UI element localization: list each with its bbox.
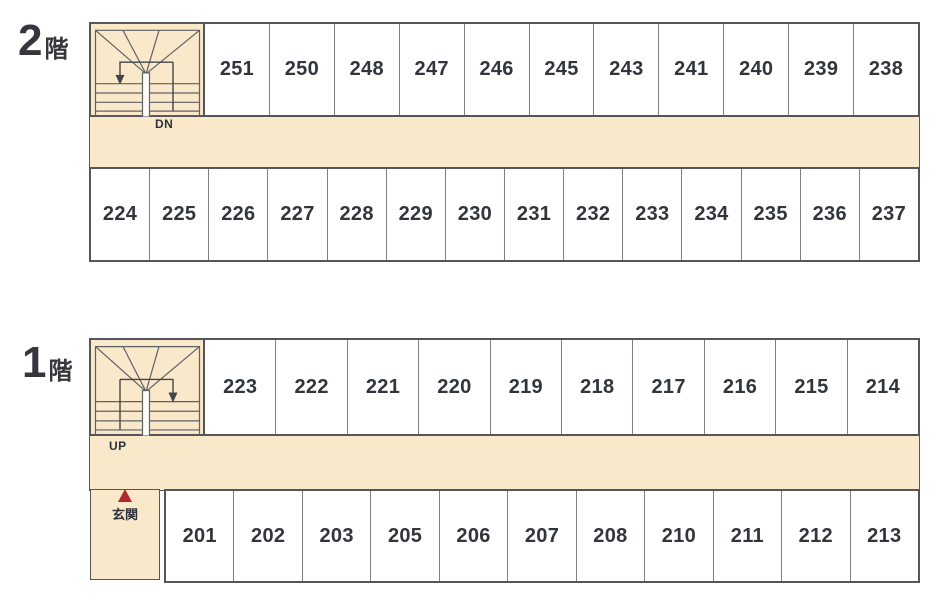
- room-cell: 240: [723, 24, 788, 115]
- entrance-label: 玄関: [112, 504, 138, 523]
- floor-1-number: 1: [22, 341, 45, 385]
- stair-direction-1f: UP: [109, 439, 127, 453]
- room-cell: 214: [847, 340, 918, 434]
- room-cell: 205: [370, 491, 438, 581]
- room-cell: 220: [418, 340, 489, 434]
- room-cell: 246: [464, 24, 529, 115]
- floor-1-label: 1 階: [22, 339, 72, 385]
- room-cell: 216: [704, 340, 775, 434]
- room-cell: 224: [91, 169, 149, 260]
- room-cell: 215: [775, 340, 846, 434]
- stair-direction-2f: DN: [155, 117, 173, 131]
- room-cell: 231: [504, 169, 563, 260]
- room-cell: 241: [658, 24, 723, 115]
- room-cell: 237: [859, 169, 918, 260]
- room-cell: 206: [439, 491, 507, 581]
- floor-1-section: 1 階 UP 223222221220219218217216215214: [0, 300, 940, 607]
- room-cell: 225: [149, 169, 208, 260]
- room-cell: 213: [850, 491, 918, 581]
- staircase-down-icon: [89, 22, 205, 117]
- staircase-2f: [89, 22, 205, 117]
- room-cell: 226: [208, 169, 267, 260]
- room-cell: 238: [853, 24, 918, 115]
- room-cell: 203: [302, 491, 370, 581]
- room-cell: 218: [561, 340, 632, 434]
- corridor-1f: [89, 435, 920, 491]
- room-cell: 247: [399, 24, 464, 115]
- room-cell: 235: [741, 169, 800, 260]
- floor-plan: 2 階 DN 251250248247246245243241240239238…: [0, 0, 940, 607]
- room-cell: 222: [275, 340, 346, 434]
- room-cell: 243: [593, 24, 658, 115]
- floor-2-number: 2: [18, 19, 41, 63]
- room-row-2f-lower: 2242252262272282292302312322332342352362…: [89, 167, 920, 262]
- room-cell: 250: [269, 24, 334, 115]
- room-cell: 217: [632, 340, 703, 434]
- room-cell: 208: [576, 491, 644, 581]
- room-cell: 236: [800, 169, 859, 260]
- room-cell: 245: [529, 24, 594, 115]
- room-cell: 234: [681, 169, 740, 260]
- room-cell: 233: [622, 169, 681, 260]
- floor-2-suffix: 階: [44, 38, 68, 63]
- corridor-2f: [89, 115, 920, 168]
- room-cell: 229: [386, 169, 445, 260]
- room-cell: 201: [166, 491, 233, 581]
- entrance-box: 玄関: [90, 489, 160, 580]
- room-cell: 211: [713, 491, 781, 581]
- room-cell: 228: [327, 169, 386, 260]
- floor-2-label: 2 階: [18, 17, 68, 63]
- staircase-up-icon: [89, 338, 205, 436]
- room-cell: 210: [644, 491, 712, 581]
- floor-2-section: 2 階 DN 251250248247246245243241240239238…: [0, 0, 940, 300]
- room-row-1f-lower: 201202203205206207208210211212213: [164, 489, 920, 583]
- room-cell: 202: [233, 491, 301, 581]
- room-row-2f-upper: 251250248247246245243241240239238: [203, 22, 920, 117]
- room-cell: 221: [347, 340, 418, 434]
- room-cell: 219: [490, 340, 561, 434]
- room-cell: 230: [445, 169, 504, 260]
- room-cell: 251: [205, 24, 269, 115]
- room-cell: 232: [563, 169, 622, 260]
- room-cell: 227: [267, 169, 326, 260]
- room-cell: 212: [781, 491, 849, 581]
- floor-1-suffix: 階: [48, 360, 72, 385]
- staircase-1f: [89, 338, 205, 436]
- room-row-1f-upper: 223222221220219218217216215214: [203, 338, 920, 436]
- room-cell: 239: [788, 24, 853, 115]
- entrance-marker-icon: [118, 489, 132, 502]
- room-cell: 223: [205, 340, 275, 434]
- room-cell: 207: [507, 491, 575, 581]
- room-cell: 248: [334, 24, 399, 115]
